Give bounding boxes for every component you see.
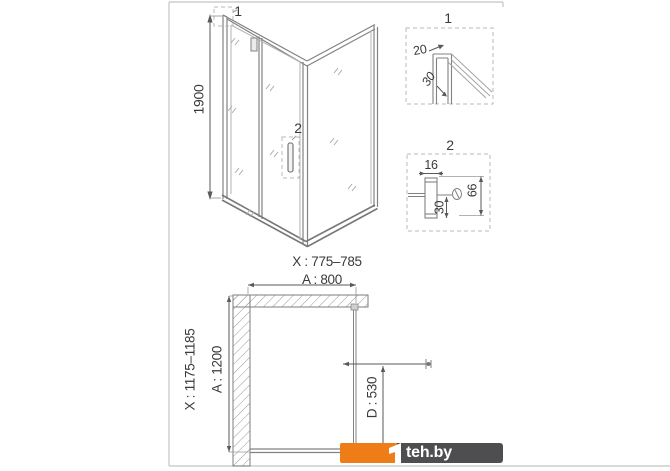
detail-1-drawing — [406, 28, 493, 104]
door-handle — [288, 143, 293, 172]
detail-2-depth-label: 66 — [467, 179, 480, 203]
wall-top — [233, 295, 368, 307]
detail-2-width-dim — [419, 171, 443, 175]
detail-2-offset-label: 30 — [434, 196, 447, 220]
front-height-dim-label: 1900 — [193, 80, 206, 120]
door-opening-dimension — [381, 366, 385, 449]
wall-profile-joint — [351, 304, 358, 310]
plan-view-drawing — [227, 283, 431, 466]
door-roller — [251, 38, 257, 51]
front-callout-2-label: 2 — [290, 122, 306, 135]
width-adjust-dim-label: X : 775–785 — [277, 255, 377, 268]
height-dimension — [207, 14, 222, 200]
detail-1-title: 1 — [440, 12, 456, 25]
watermark-flag-icon — [388, 441, 404, 463]
plan-depth-label: A : 1200 — [211, 330, 224, 410]
width-dim-label: A : 800 — [282, 273, 362, 286]
front-callout-1-label: 1 — [230, 5, 246, 18]
product-technical-drawing: 1 1900 2 X : 775–785 A : 800 1 20 30 2 1… — [0, 0, 670, 471]
watermark-brand-text: teh.by — [406, 445, 452, 461]
plan-depth-adjust-label: X : 1175–1185 — [184, 313, 197, 427]
detail-2-width-label: 16 — [419, 159, 443, 172]
door-opening-label: D : 530 — [366, 366, 379, 430]
drawing-canvas — [0, 0, 670, 471]
detail-2-title: 2 — [442, 139, 458, 152]
wall-left — [233, 295, 250, 466]
